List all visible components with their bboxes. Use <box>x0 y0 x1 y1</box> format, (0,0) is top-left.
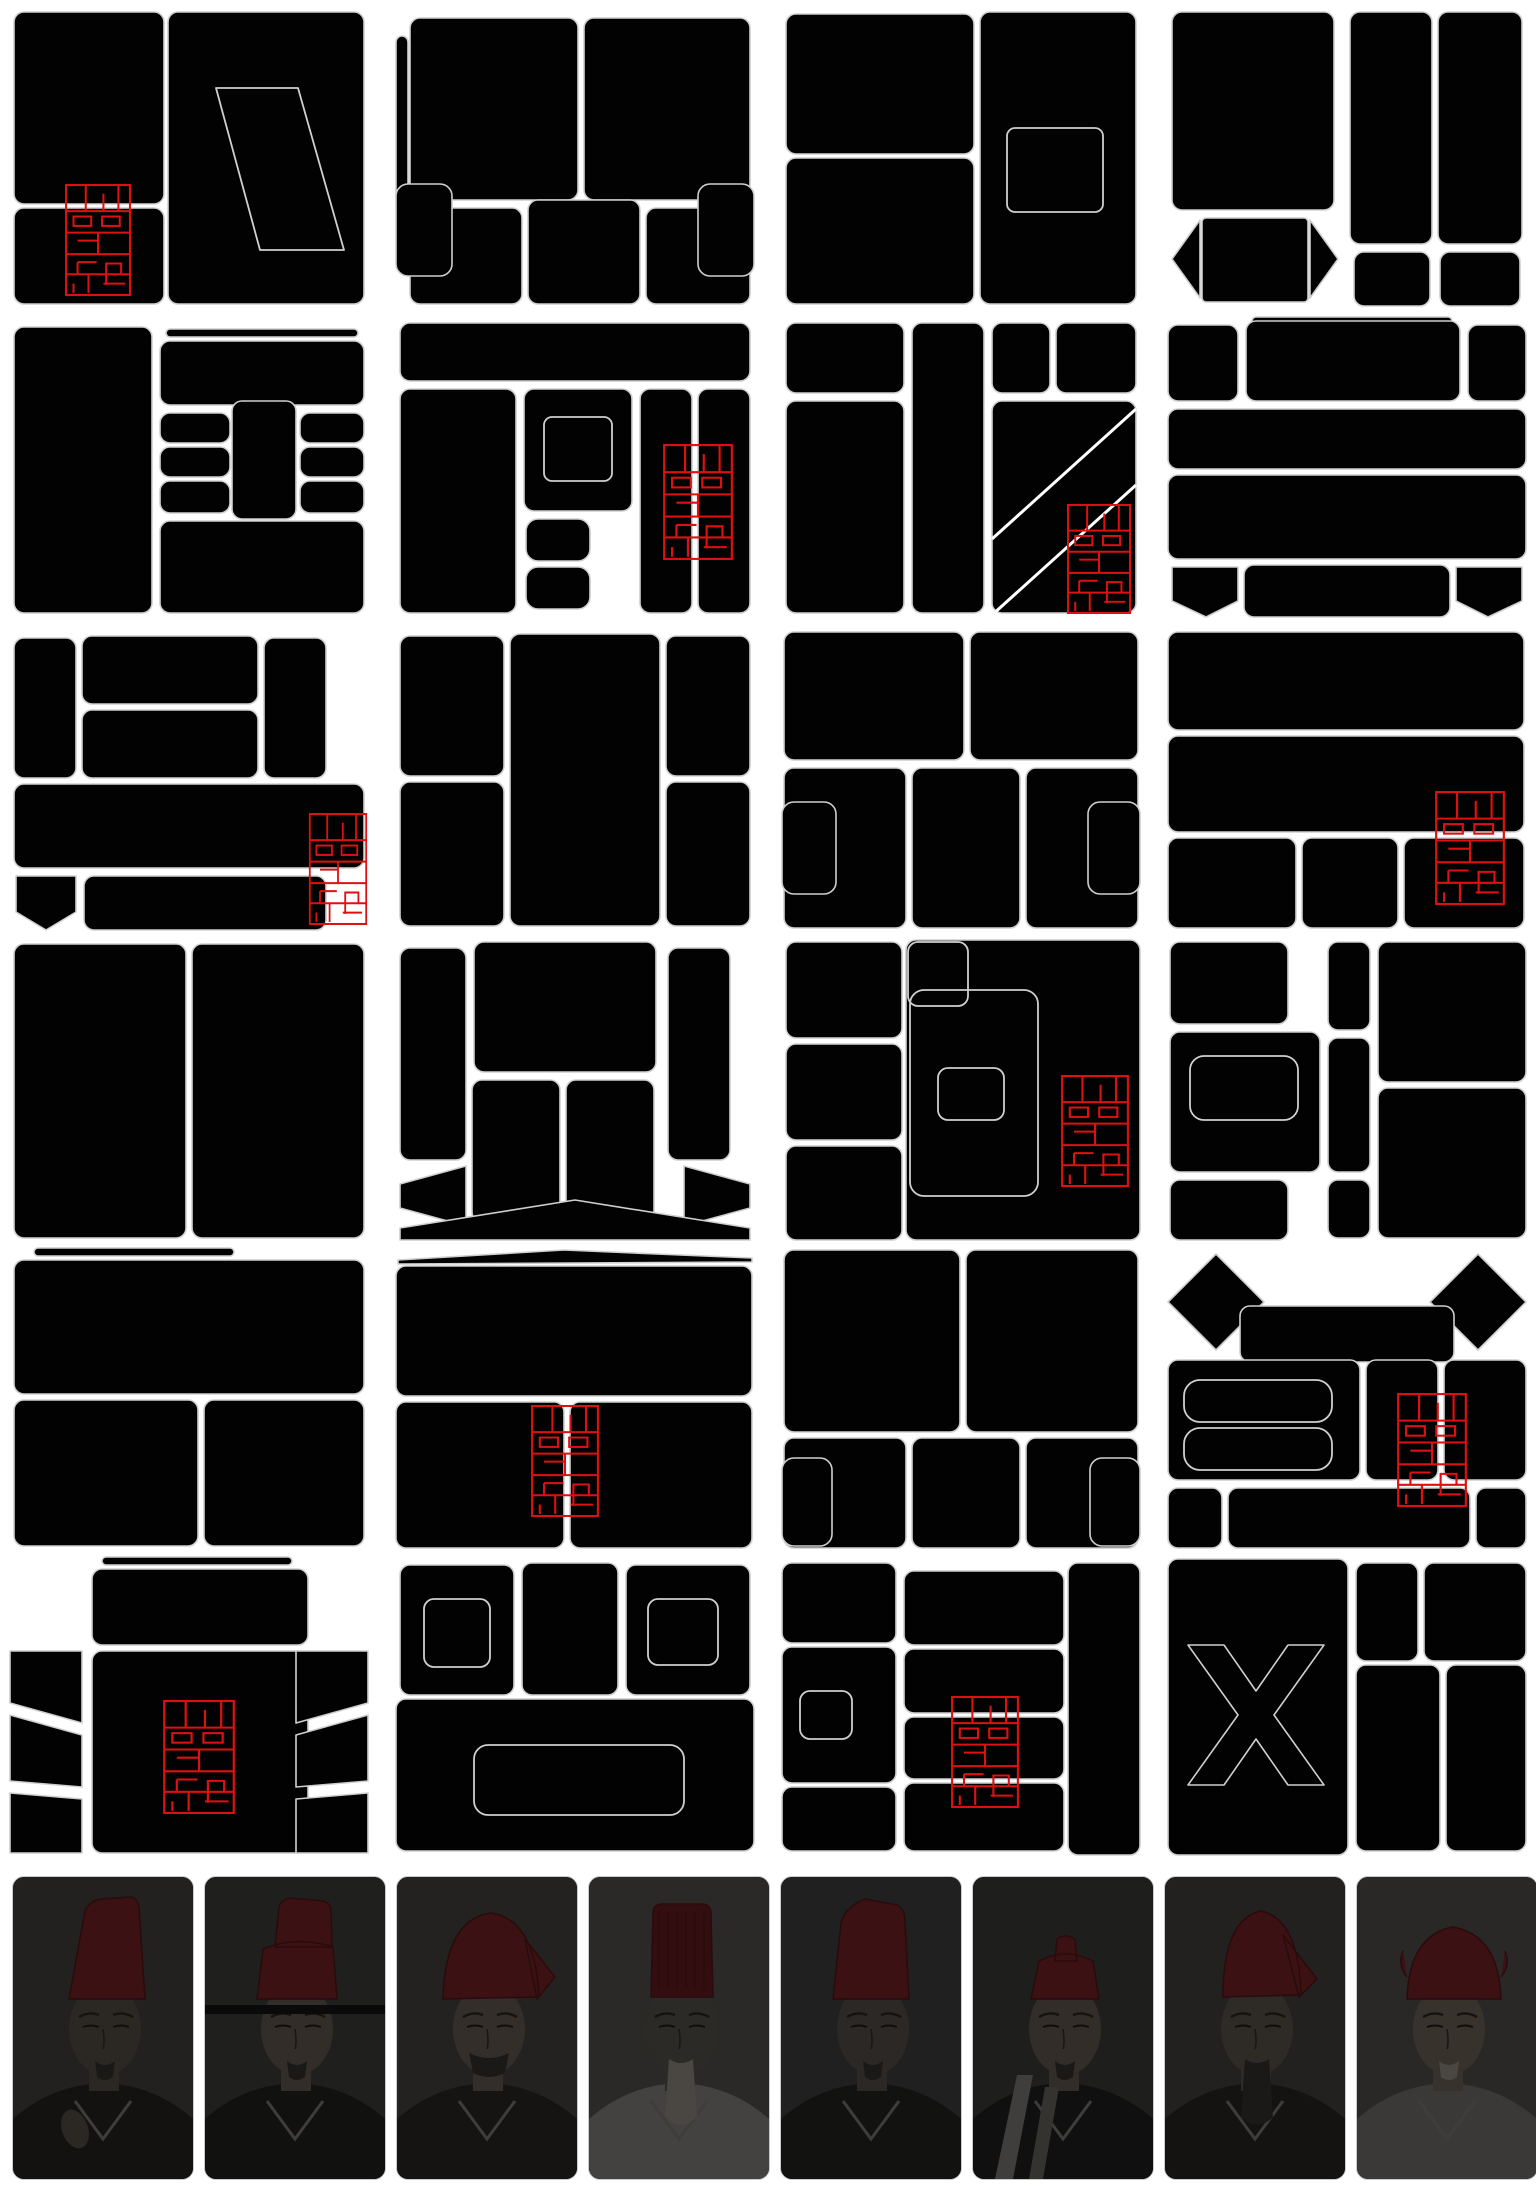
block <box>1356 1665 1440 1851</box>
block <box>626 1565 750 1695</box>
block <box>1168 409 1526 469</box>
block-composition <box>782 1555 1140 1855</box>
block <box>400 782 504 926</box>
block <box>1302 838 1398 928</box>
tile-r4c2 <box>396 940 754 1240</box>
block <box>300 481 364 513</box>
block <box>1172 12 1334 210</box>
block <box>400 323 750 381</box>
scholar-portrait <box>1165 1877 1345 2179</box>
block <box>912 768 1020 928</box>
portrait-6 <box>972 1876 1154 2180</box>
block <box>784 632 964 760</box>
block <box>400 636 504 776</box>
tile-r1c1 <box>10 8 368 308</box>
block <box>1168 475 1526 559</box>
block <box>668 948 730 1160</box>
block <box>1168 736 1524 832</box>
portrait-8 <box>1356 1876 1536 2180</box>
scholar-portrait <box>973 1877 1153 2179</box>
block <box>698 184 754 276</box>
block <box>264 638 326 778</box>
tile-r6c1 <box>10 1555 368 1855</box>
red-hat <box>833 1899 909 1999</box>
block <box>1168 1360 1360 1480</box>
block <box>666 782 750 926</box>
scholar-portrait <box>589 1877 769 2179</box>
scholar-portrait <box>1357 1877 1536 2179</box>
block <box>1246 321 1460 401</box>
block <box>782 1458 832 1546</box>
block <box>1090 1458 1140 1546</box>
block <box>786 1044 902 1140</box>
block <box>1056 323 1136 393</box>
block <box>1456 567 1522 617</box>
block <box>10 1651 82 1723</box>
block <box>786 323 904 393</box>
scholar-portrait <box>397 1877 577 2179</box>
block <box>296 1651 368 1723</box>
block-composition <box>782 940 1140 1240</box>
tile-r2c2 <box>396 317 754 617</box>
block <box>400 1166 466 1226</box>
block <box>1244 565 1450 617</box>
block <box>14 12 164 204</box>
block <box>1446 1665 1526 1851</box>
tile-r3c4 <box>1168 630 1526 930</box>
block-composition <box>1168 1555 1526 1855</box>
tile-r1c2 <box>396 8 754 308</box>
beard <box>1241 2059 1273 2125</box>
block <box>782 802 836 894</box>
block <box>10 1793 82 1853</box>
block <box>528 200 640 304</box>
block <box>1328 1038 1370 1172</box>
block <box>300 447 364 477</box>
block-composition <box>10 1248 368 1548</box>
block <box>1378 1088 1526 1238</box>
block-composition <box>10 317 368 617</box>
scholar-portrait <box>205 1877 385 2179</box>
tile-r2c4 <box>1168 317 1526 617</box>
block <box>1168 325 1238 401</box>
block-composition <box>782 630 1140 930</box>
block <box>396 1266 752 1396</box>
block <box>904 1783 1064 1851</box>
tile-r6c3 <box>782 1555 1140 1855</box>
block <box>14 1260 364 1394</box>
portrait-4 <box>588 1876 770 2180</box>
block <box>82 710 258 778</box>
block-composition <box>396 317 754 617</box>
block <box>160 447 230 477</box>
block <box>400 1565 514 1695</box>
portrait-7 <box>1164 1876 1346 2180</box>
tile-r5c1 <box>10 1248 368 1548</box>
block-composition <box>1168 1248 1526 1548</box>
tile-r4c4 <box>1168 940 1526 1240</box>
block-composition <box>782 317 1140 617</box>
block <box>1310 220 1338 298</box>
block <box>1328 1180 1370 1238</box>
block <box>784 1250 960 1432</box>
block <box>904 1571 1064 1645</box>
block <box>296 1793 368 1853</box>
block <box>400 948 466 1160</box>
block <box>912 323 984 613</box>
block <box>684 1166 750 1226</box>
block-composition <box>1168 317 1526 617</box>
block-composition <box>396 940 754 1240</box>
block <box>400 389 516 613</box>
portrait-3 <box>396 1876 578 2180</box>
block <box>906 940 1140 1240</box>
block <box>912 1438 1020 1548</box>
block <box>526 567 590 609</box>
block <box>1088 802 1140 894</box>
block <box>1424 1563 1526 1661</box>
block <box>782 1787 896 1851</box>
tile-r3c2 <box>396 630 754 930</box>
block <box>526 519 590 561</box>
block <box>1168 838 1296 928</box>
block-composition <box>1168 8 1526 308</box>
block <box>524 389 632 511</box>
block <box>160 341 364 405</box>
block <box>472 1080 560 1222</box>
block <box>16 876 76 930</box>
block-composition <box>10 940 368 1240</box>
beard <box>665 2059 697 2125</box>
block <box>1172 567 1238 617</box>
block <box>232 401 296 519</box>
block <box>398 1250 752 1264</box>
block <box>786 14 974 154</box>
block <box>160 481 230 513</box>
block-composition <box>396 1248 754 1548</box>
block <box>1354 252 1430 306</box>
block <box>474 942 656 1072</box>
portrait-2 <box>204 1876 386 2180</box>
block <box>904 1649 1064 1713</box>
block-composition <box>10 1555 368 1855</box>
block <box>204 1400 364 1546</box>
scholar-portrait <box>781 1877 961 2179</box>
block <box>10 1715 82 1787</box>
block-composition <box>10 630 368 930</box>
block <box>1170 1180 1288 1240</box>
block-composition <box>1168 630 1526 930</box>
block-composition <box>10 8 368 308</box>
block <box>970 632 1138 760</box>
block <box>666 636 750 776</box>
block <box>640 389 692 613</box>
tile-r1c4 <box>1168 8 1526 308</box>
tile-r1c3 <box>782 8 1140 308</box>
hat-strap-bar <box>205 2005 385 2014</box>
tile-r4c3 <box>782 940 1140 1240</box>
block <box>786 1146 902 1240</box>
block <box>698 389 750 613</box>
block <box>786 158 974 304</box>
block <box>82 636 258 704</box>
block <box>966 1250 1138 1432</box>
tile-r6c4 <box>1168 1555 1526 1855</box>
block <box>168 12 364 304</box>
block <box>786 942 902 1038</box>
block <box>1202 218 1308 302</box>
block <box>1168 1488 1222 1548</box>
block-composition <box>396 630 754 930</box>
block <box>160 413 230 443</box>
block-composition <box>782 1248 1140 1548</box>
block <box>1356 1563 1418 1661</box>
block <box>102 1557 292 1565</box>
tile-r3c3 <box>782 630 1140 930</box>
block <box>92 1569 308 1645</box>
block <box>1328 942 1370 1030</box>
block <box>992 323 1050 393</box>
block <box>410 18 578 200</box>
block-composition <box>396 8 754 308</box>
block <box>1228 1488 1470 1548</box>
block <box>980 12 1136 304</box>
block <box>14 944 186 1238</box>
block <box>160 521 364 613</box>
block <box>1170 942 1288 1024</box>
block <box>1350 12 1432 244</box>
block <box>1438 12 1522 244</box>
block-composition <box>1168 940 1526 1240</box>
tile-r5c2 <box>396 1248 754 1548</box>
block <box>510 634 660 926</box>
block <box>522 1563 618 1695</box>
block <box>14 638 76 778</box>
tile-r5c4 <box>1168 1248 1526 1548</box>
block <box>782 1563 896 1643</box>
block <box>1476 1488 1526 1548</box>
tile-r2c3 <box>782 317 1140 617</box>
block <box>396 184 452 276</box>
block <box>1240 1306 1454 1362</box>
poster-artboard <box>0 0 1536 2194</box>
tile-r6c2 <box>396 1555 754 1855</box>
tile-r2c1 <box>10 317 368 617</box>
block-composition <box>782 8 1140 308</box>
block <box>1440 252 1520 306</box>
block <box>34 1248 234 1256</box>
scholar-portrait <box>13 1877 193 2179</box>
block <box>782 1647 896 1783</box>
block <box>1168 632 1524 730</box>
block <box>14 327 152 613</box>
block <box>192 944 364 1238</box>
block <box>166 329 358 337</box>
block <box>1172 220 1200 298</box>
block <box>396 1699 754 1851</box>
portrait-5 <box>780 1876 962 2180</box>
block-composition <box>396 1555 754 1855</box>
tile-r4c1 <box>10 940 368 1240</box>
block <box>14 784 364 868</box>
portrait-1 <box>12 1876 194 2180</box>
block <box>84 876 326 930</box>
block <box>1468 325 1526 401</box>
tile-r5c3 <box>782 1248 1140 1548</box>
tile-r3c1 <box>10 630 368 930</box>
block <box>584 18 750 200</box>
block <box>786 401 904 613</box>
block <box>300 413 364 443</box>
block <box>14 1400 198 1546</box>
block <box>1378 942 1526 1082</box>
block <box>1068 1563 1140 1855</box>
